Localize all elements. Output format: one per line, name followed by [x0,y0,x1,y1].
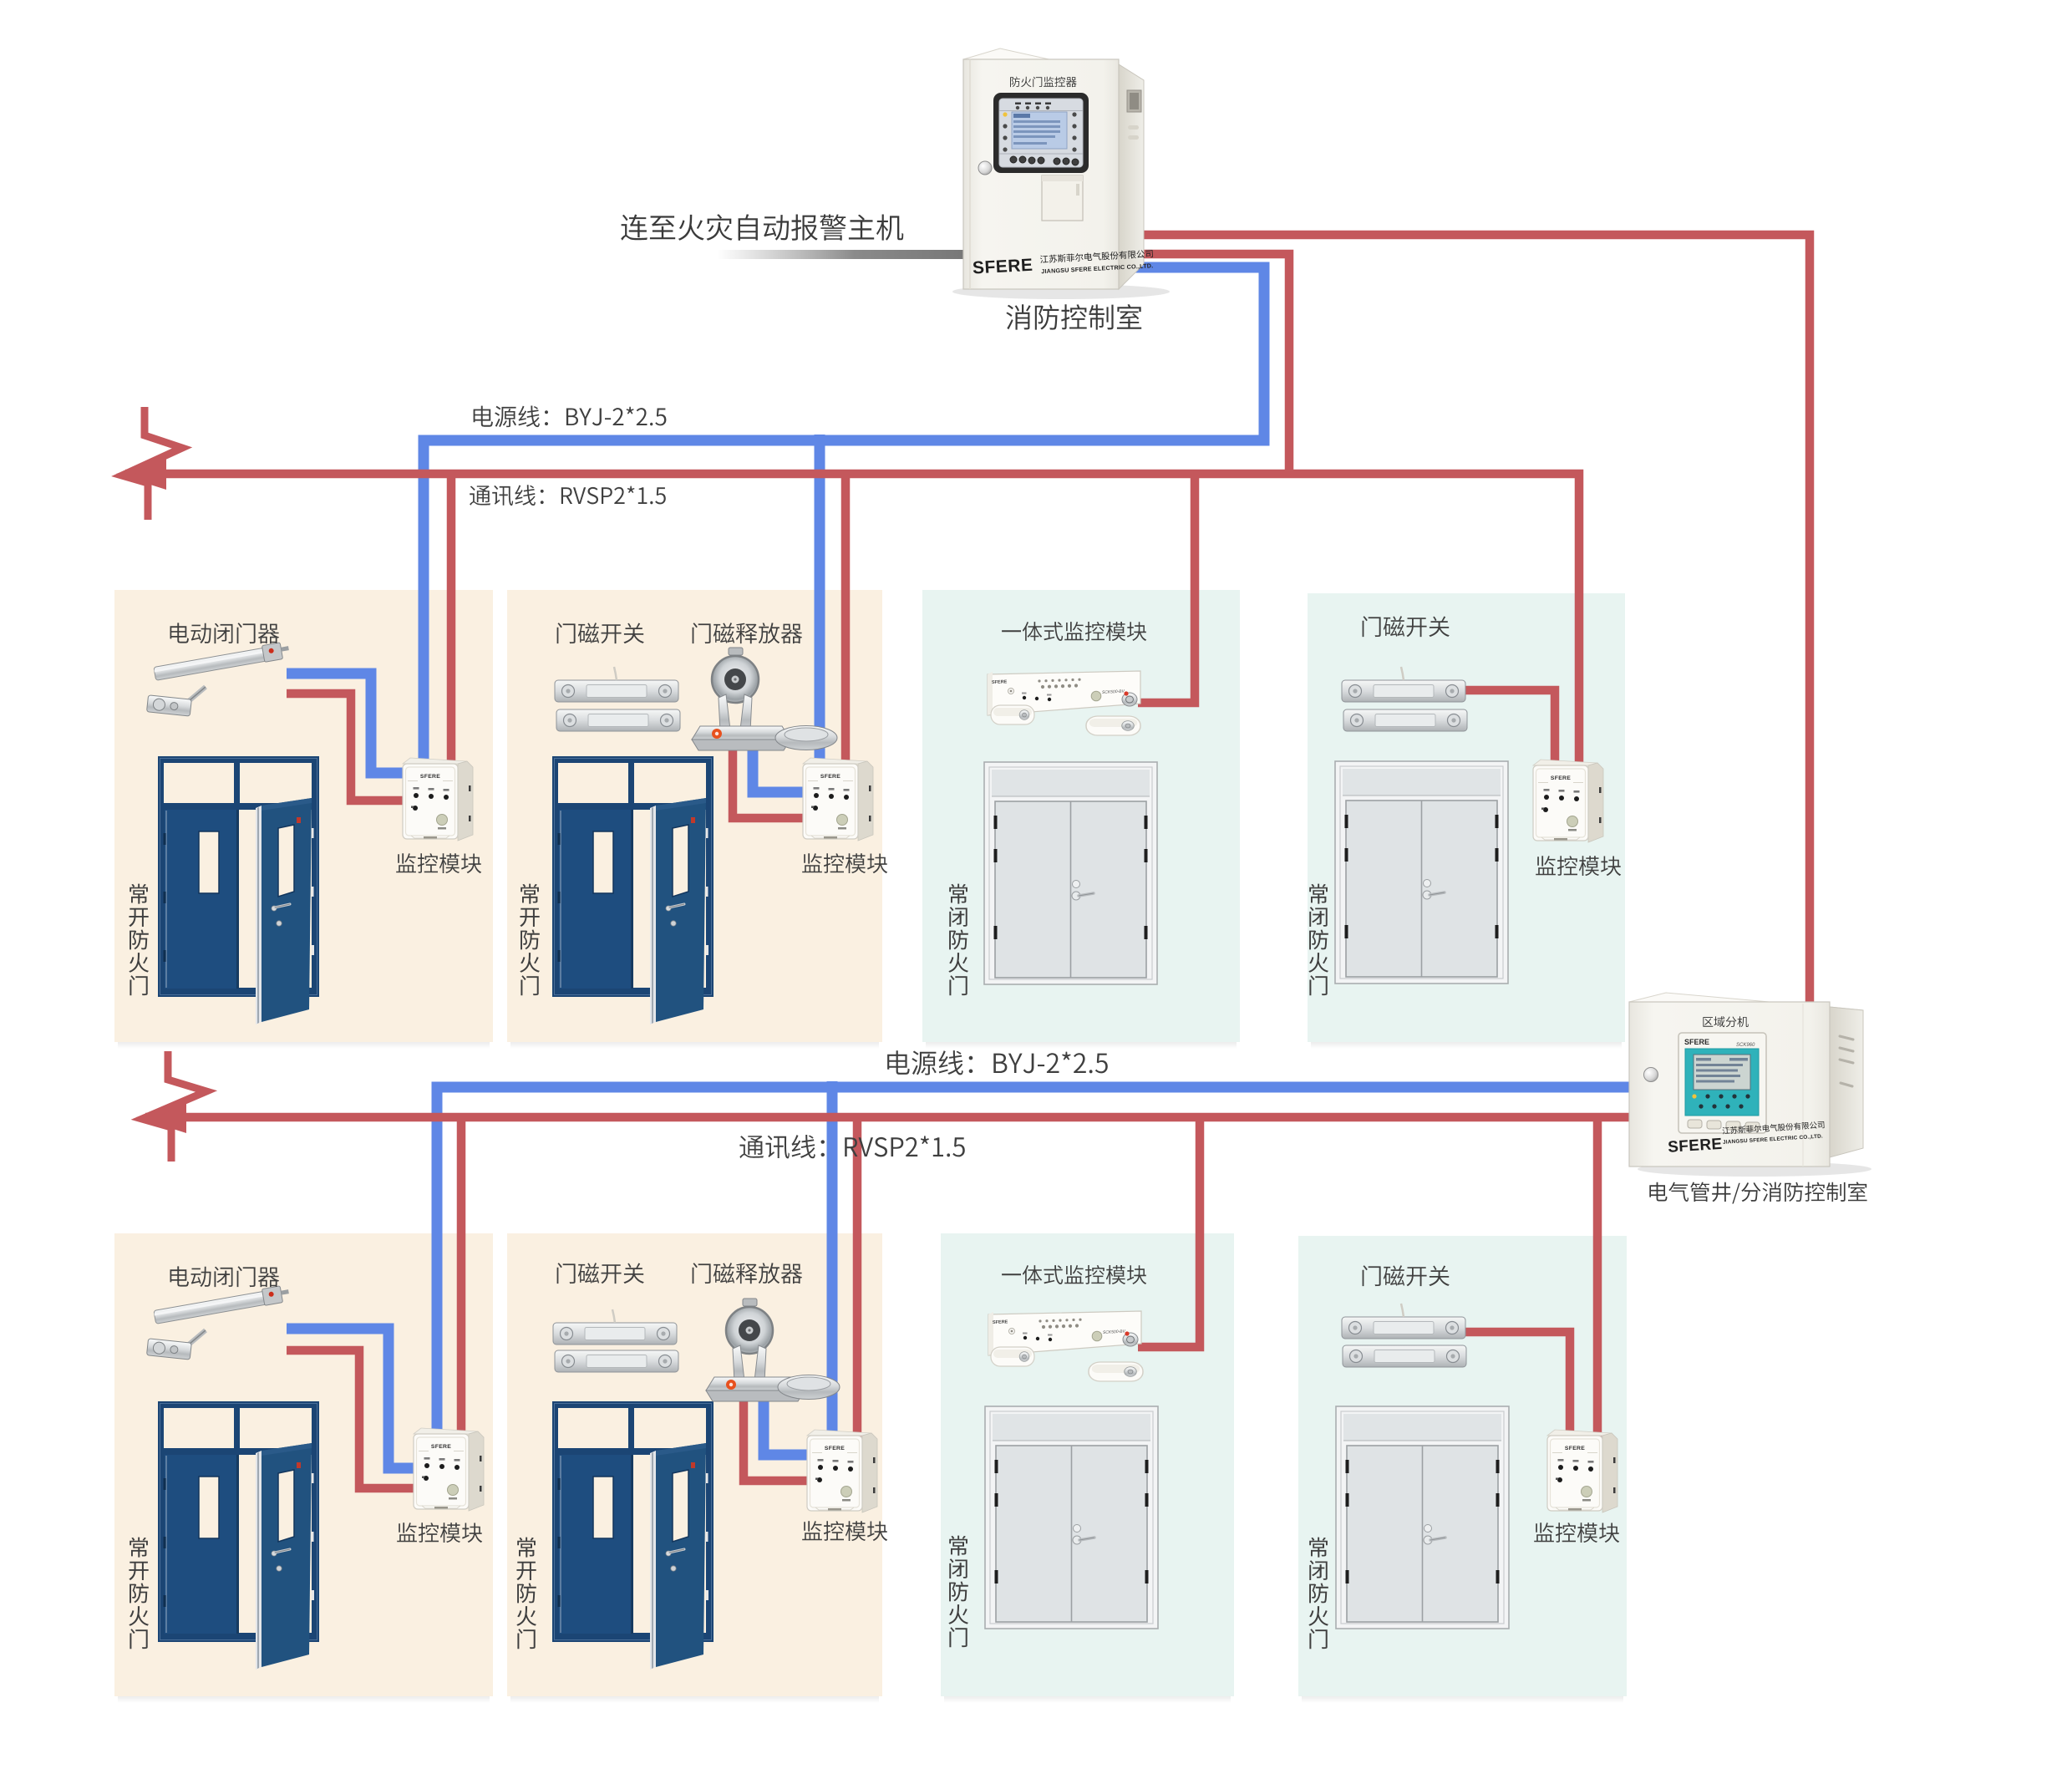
svg-text:SFERE: SFERE [972,256,1033,278]
svg-text:SFERE: SFERE [1668,1136,1724,1156]
svg-text:SCK960: SCK960 [1736,1043,1755,1048]
svg-text:SFERE: SFERE [1684,1038,1709,1046]
